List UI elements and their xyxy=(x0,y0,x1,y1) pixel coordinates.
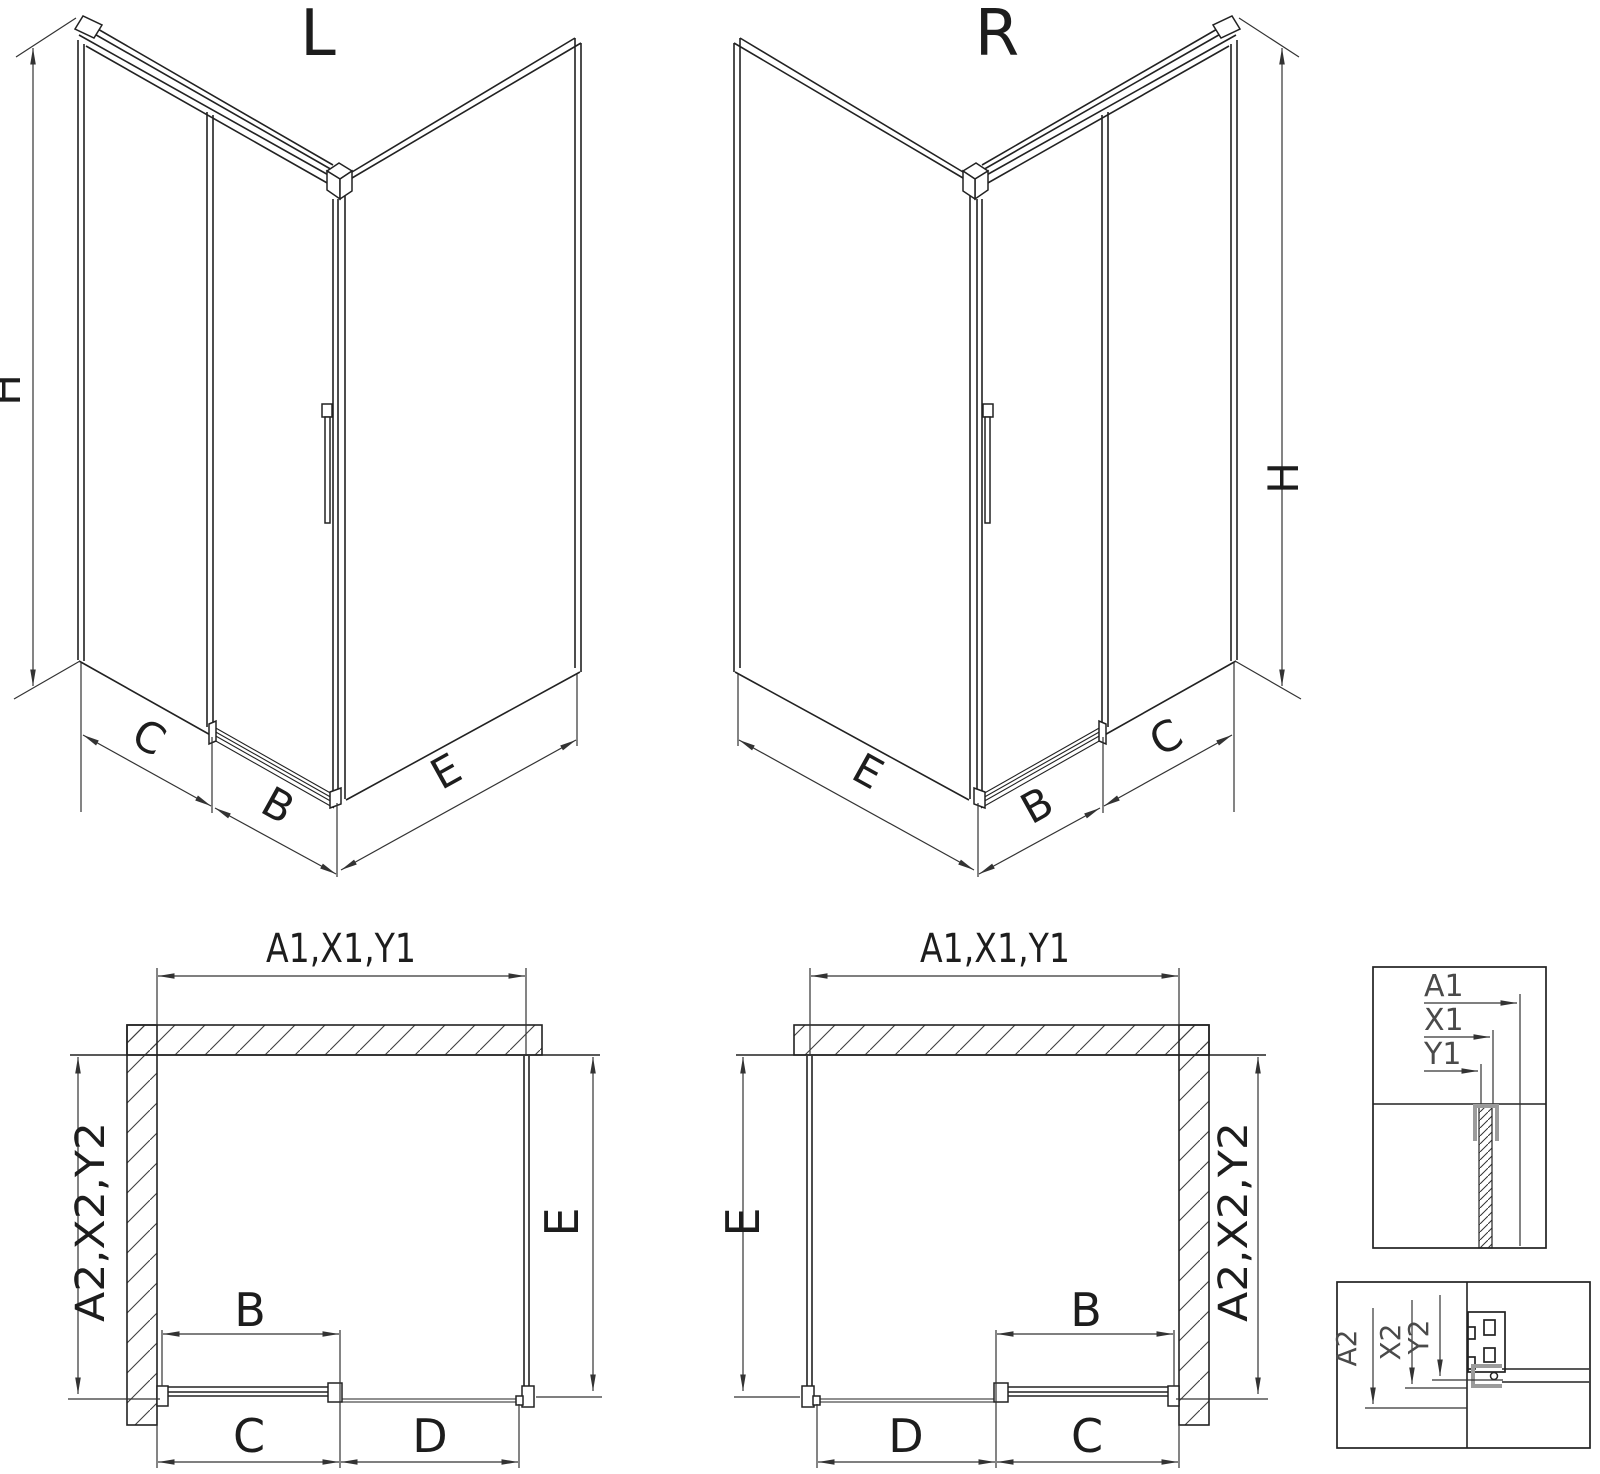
drawing-canvas: L H C B E R H C B E A1,X1,Y1 A2,X2,Y2 E … xyxy=(0,0,1600,1474)
plan-left-walls xyxy=(127,1025,542,1425)
iso-view-left-geometry xyxy=(14,16,581,877)
plan-right-side-dim: E xyxy=(716,1207,770,1236)
glass-section xyxy=(1479,1106,1492,1248)
detail-ref-Y2: Y2 xyxy=(1402,1320,1435,1356)
plan-right-width-dim: A1,X1,Y1 xyxy=(920,926,1070,972)
detail-ref-A1: A1 xyxy=(1424,969,1464,1004)
dim-label-panel-right: C xyxy=(1141,709,1190,766)
plan-right-depth-dim: A2,X2,Y2 xyxy=(1211,1122,1257,1322)
title-right-variant: R xyxy=(975,0,1019,71)
dim-label-side-left: E xyxy=(422,743,469,799)
wall-section-left xyxy=(127,1025,157,1425)
detail-ref-X1: X1 xyxy=(1424,1003,1464,1038)
wall-section-right xyxy=(1179,1025,1209,1425)
dim-label-panel-left: C xyxy=(124,709,173,766)
dim-label-height-right: H xyxy=(1259,462,1308,494)
labels-layer: L H C B E R H C B E A1,X1,Y1 A2,X2,Y2 E … xyxy=(0,0,1464,1463)
plan-left-door-dim: B xyxy=(234,1283,266,1337)
detail-box-depth-refs xyxy=(1337,1282,1590,1448)
iso-view-right-geometry xyxy=(734,16,1301,877)
dim-label-height-left: H xyxy=(0,374,30,406)
roller-wheel xyxy=(1491,1373,1498,1380)
plan-left-fixed-dim: D xyxy=(412,1409,447,1463)
detail-ref-A2: A2 xyxy=(1330,1330,1363,1367)
plan-right-fixed-dim: D xyxy=(888,1409,923,1463)
wall-section-top xyxy=(127,1025,542,1055)
plan-left-width-dim: A1,X1,Y1 xyxy=(266,926,416,972)
plan-left-side-dim: E xyxy=(535,1207,589,1236)
plan-right-door-dim: B xyxy=(1070,1283,1102,1337)
plan-right-door-run-dim: C xyxy=(1071,1409,1103,1463)
detail-ref-Y1: Y1 xyxy=(1423,1037,1461,1072)
plan-right-walls xyxy=(794,1025,1209,1425)
wall-section-top xyxy=(794,1025,1209,1055)
plan-left-door-run-dim: C xyxy=(233,1409,265,1463)
plan-left-depth-dim: A2,X2,Y2 xyxy=(68,1122,114,1322)
dim-label-side-right: E xyxy=(845,743,892,799)
shower-enclosure-technical-drawing: L H C B E R H C B E A1,X1,Y1 A2,X2,Y2 E … xyxy=(0,0,1600,1474)
title-left-variant: L xyxy=(300,0,336,71)
